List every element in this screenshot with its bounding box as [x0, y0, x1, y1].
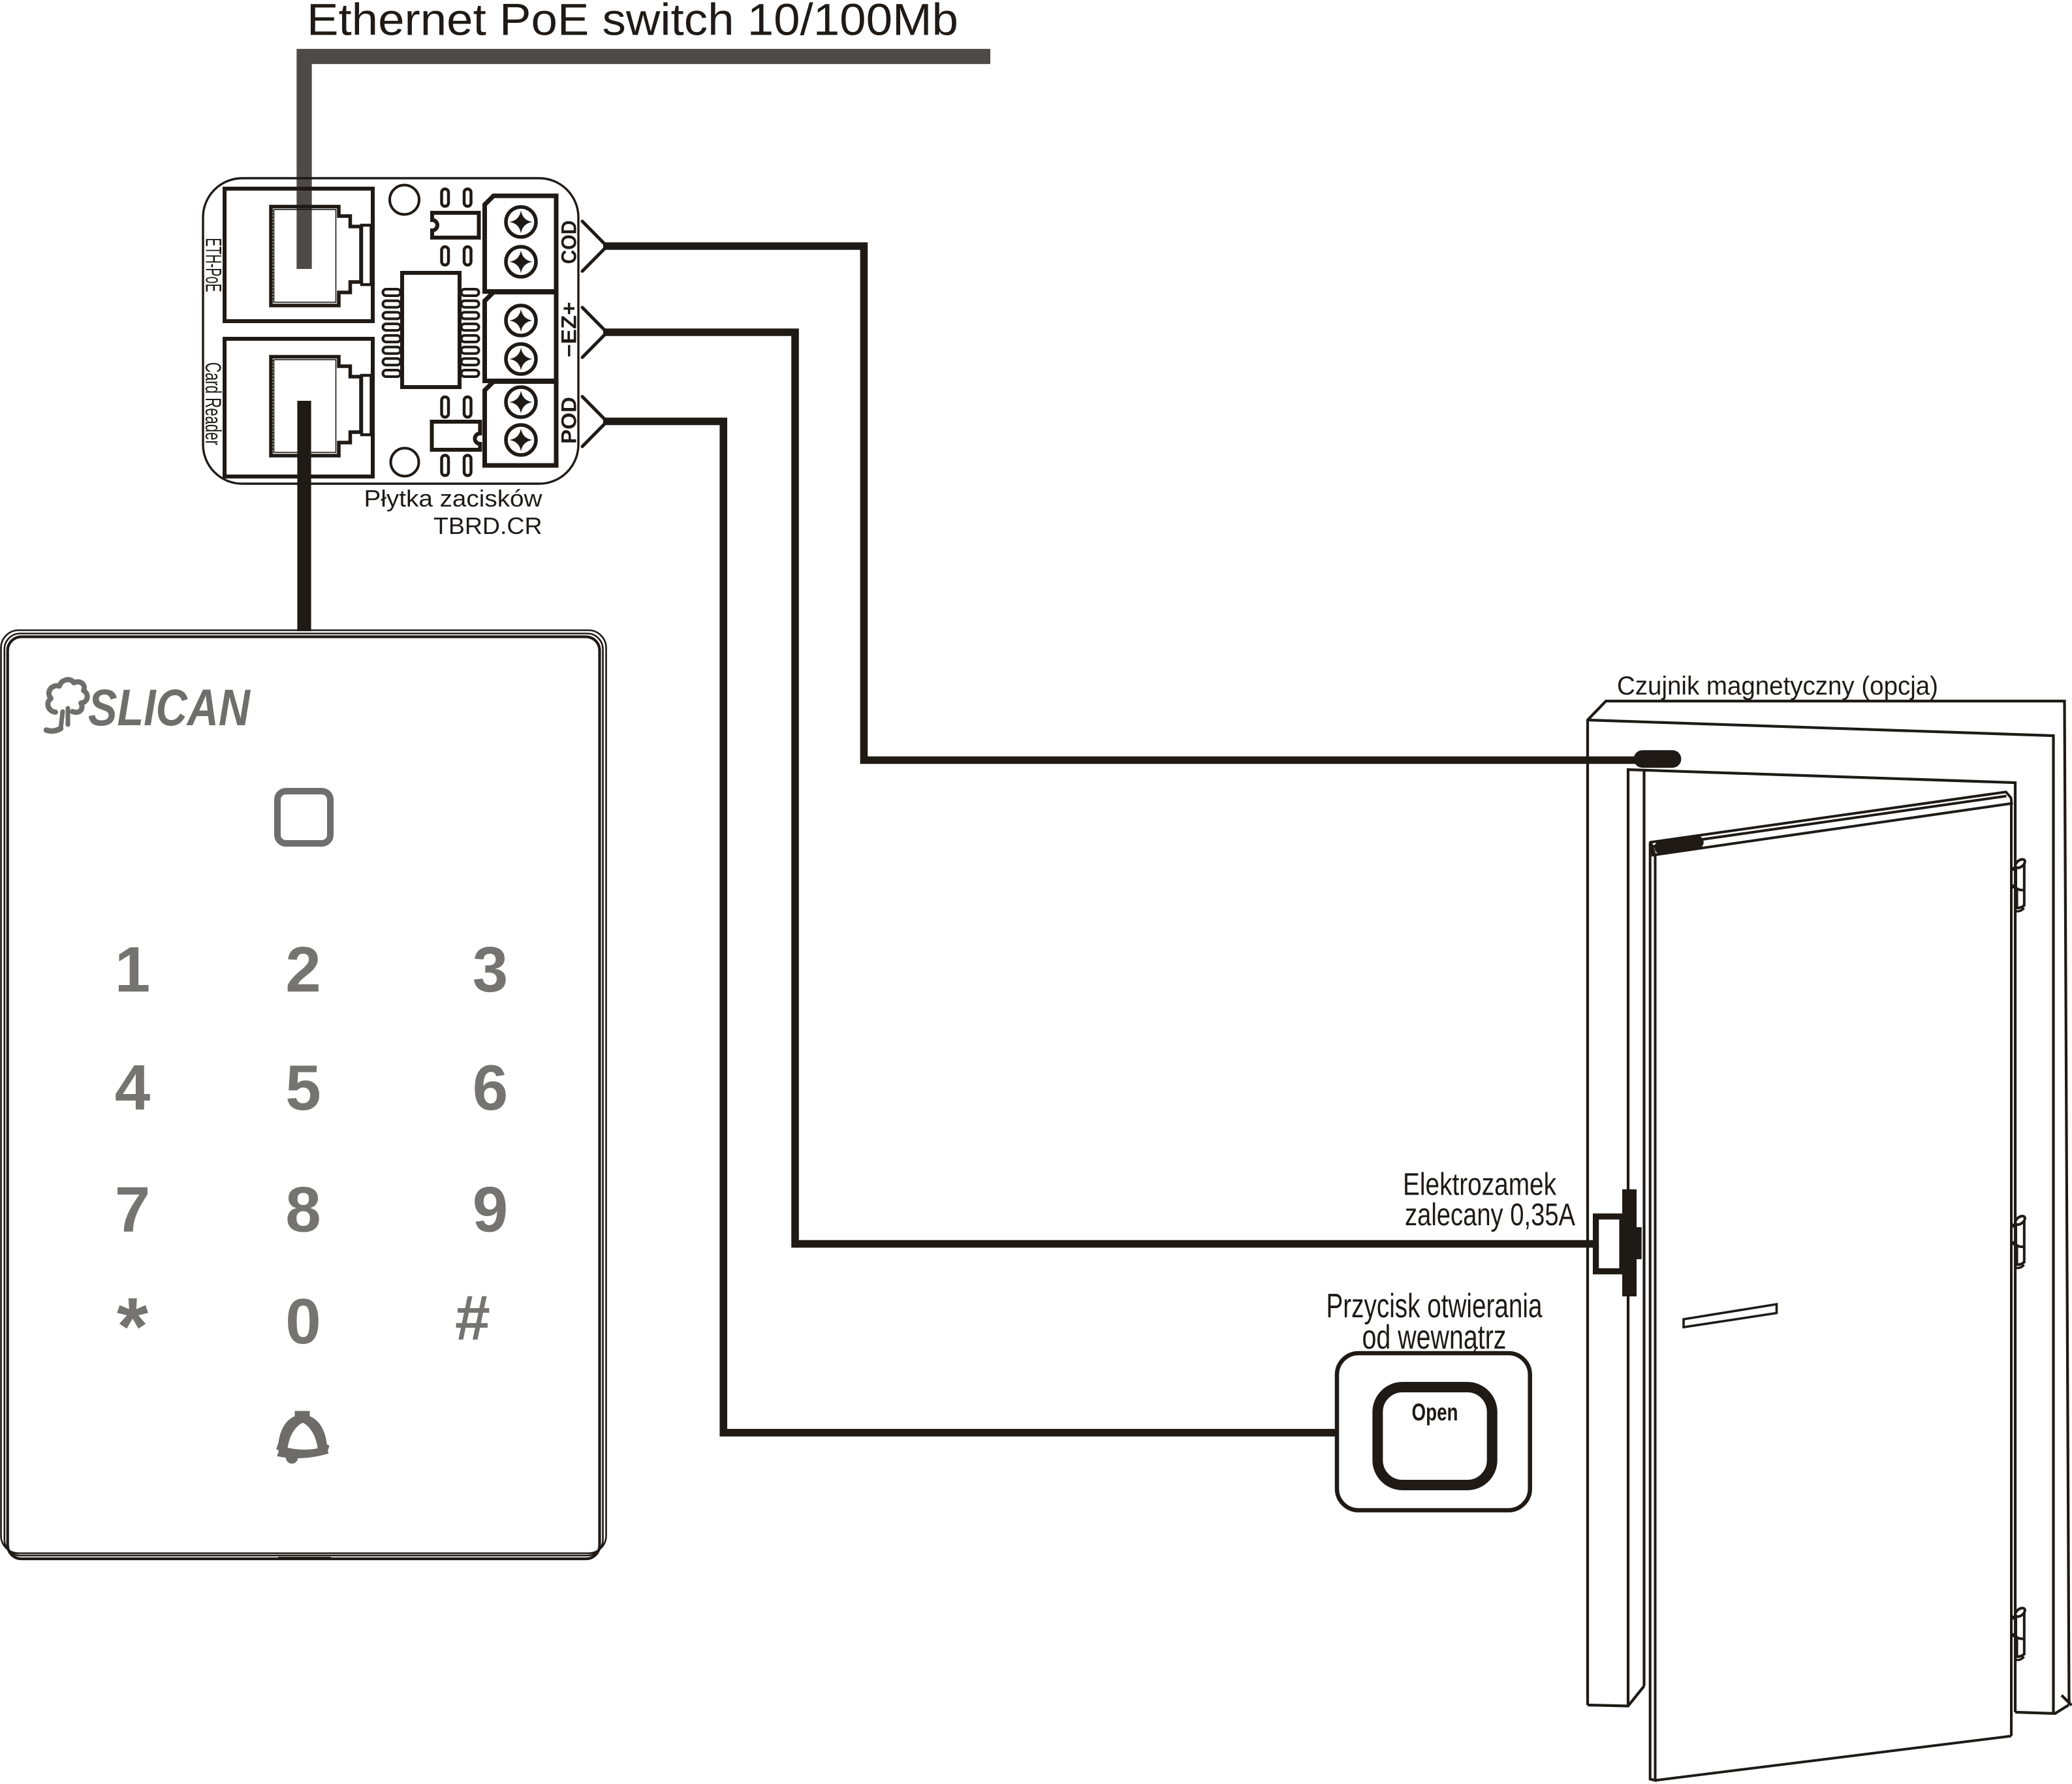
svg-text:6: 6	[473, 1052, 509, 1123]
svg-text:3: 3	[473, 933, 509, 1005]
svg-text:zalecany 0,35A: zalecany 0,35A	[1405, 1198, 1575, 1232]
svg-text:8: 8	[285, 1174, 321, 1245]
svg-text:0: 0	[285, 1285, 321, 1357]
svg-text:4: 4	[115, 1052, 151, 1123]
svg-text:ETH-PoE: ETH-PoE	[200, 238, 225, 292]
svg-text:7: 7	[115, 1174, 151, 1245]
svg-text:TBRD.CR: TBRD.CR	[433, 512, 542, 539]
svg-text:SLICAN: SLICAN	[88, 678, 251, 736]
svg-text:COD: COD	[557, 221, 581, 264]
svg-text:Elektrozamek: Elektrozamek	[1403, 1168, 1557, 1202]
svg-text:#: #	[455, 1282, 490, 1353]
svg-text:Płytka zacisków: Płytka zacisków	[364, 485, 543, 512]
svg-text:9: 9	[473, 1174, 509, 1245]
svg-text:*: *	[117, 1282, 149, 1372]
svg-text:Ethernet PoE switch 10/100Mb: Ethernet PoE switch 10/100Mb	[307, 0, 958, 45]
svg-text:od wewnątrz: od wewnątrz	[1362, 1319, 1507, 1356]
svg-text:Czujnik magnetyczny (opcja): Czujnik magnetyczny (opcja)	[1617, 672, 1938, 700]
svg-text:2: 2	[285, 933, 321, 1005]
svg-text:5: 5	[285, 1052, 321, 1123]
svg-text:1: 1	[115, 933, 151, 1005]
svg-text:POD: POD	[557, 397, 581, 444]
svg-text:Card Reader: Card Reader	[200, 362, 225, 445]
svg-text:−EZ+: −EZ+	[557, 302, 581, 358]
svg-text:Open: Open	[1412, 1399, 1458, 1426]
